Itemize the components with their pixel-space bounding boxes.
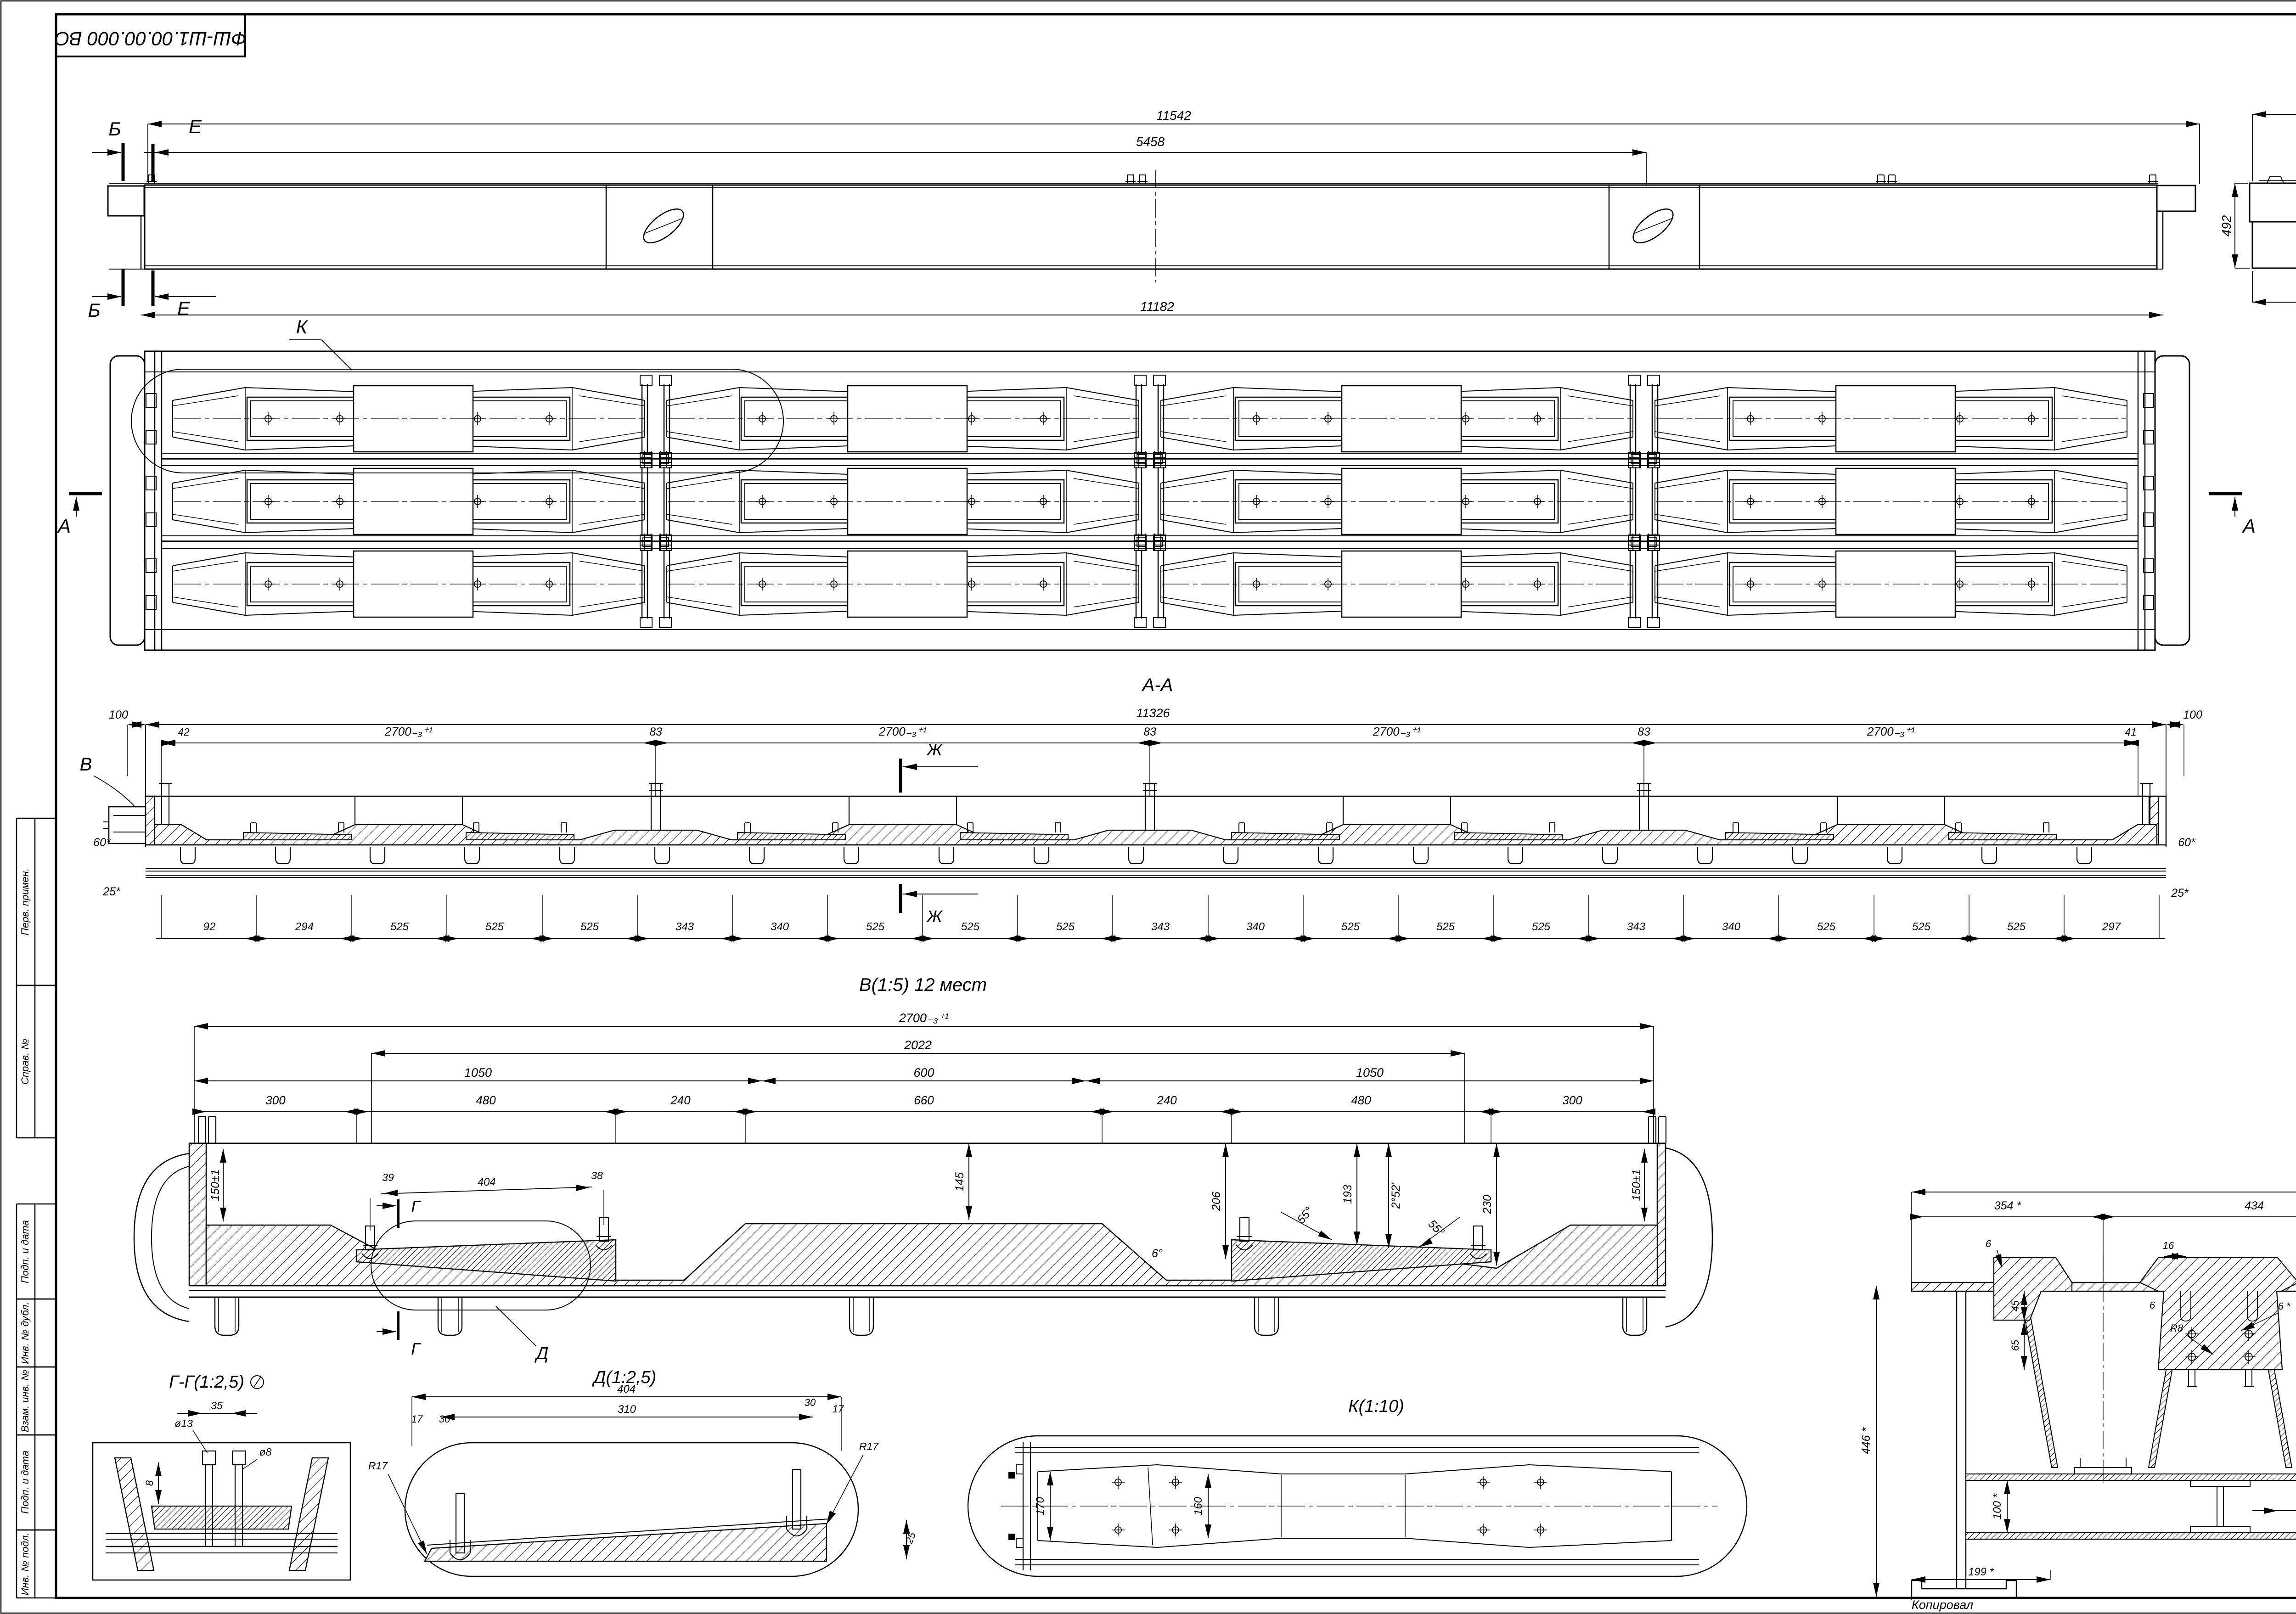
svg-text:230: 230	[1481, 1195, 1494, 1215]
svg-text:Ж: Ж	[926, 740, 943, 759]
svg-text:R8: R8	[2170, 1322, 2183, 1334]
svg-text:А-А: А-А	[1142, 675, 1173, 695]
svg-text:2700₋₃⁺¹: 2700₋₃⁺¹	[384, 725, 433, 738]
svg-text:38: 38	[591, 1170, 603, 1181]
svg-text:ø8: ø8	[259, 1446, 272, 1458]
svg-text:Д: Д	[535, 1344, 549, 1363]
svg-text:39: 39	[382, 1171, 394, 1183]
svg-text:83: 83	[649, 725, 662, 738]
svg-text:25*: 25*	[102, 885, 121, 898]
svg-text:100 *: 100 *	[1991, 1493, 2003, 1519]
svg-text:35: 35	[211, 1400, 223, 1412]
svg-text:300: 300	[265, 1093, 286, 1107]
svg-text:2022: 2022	[904, 1038, 932, 1052]
svg-text:92: 92	[203, 921, 216, 933]
svg-text:Е: Е	[189, 116, 202, 137]
svg-text:30: 30	[439, 1413, 450, 1425]
svg-text:25*: 25*	[2171, 887, 2189, 900]
svg-text:83: 83	[1638, 725, 1650, 738]
svg-text:525: 525	[1341, 921, 1360, 933]
svg-text:206: 206	[1210, 1192, 1223, 1211]
svg-text:Инв. № подл.: Инв. № подл.	[19, 1533, 31, 1596]
svg-text:600: 600	[913, 1066, 934, 1080]
svg-text:Перв. примен.: Перв. примен.	[19, 868, 31, 935]
svg-text:525: 525	[485, 921, 504, 933]
svg-text:6°: 6°	[1152, 1247, 1163, 1260]
svg-text:6: 6	[2150, 1299, 2155, 1311]
svg-text:2700₋₃⁺¹: 2700₋₃⁺¹	[878, 725, 927, 738]
svg-text:Б: Б	[108, 118, 121, 140]
svg-text:300: 300	[1562, 1093, 1582, 1107]
svg-text:525: 525	[1056, 921, 1075, 933]
svg-text:199 *: 199 *	[1968, 1566, 1994, 1578]
svg-text:60*: 60*	[93, 836, 111, 849]
svg-text:297: 297	[2102, 921, 2122, 933]
svg-text:А: А	[56, 515, 71, 537]
svg-text:К(1:10): К(1:10)	[1348, 1397, 1404, 1416]
svg-text:150±1: 150±1	[209, 1169, 222, 1201]
svg-text:193: 193	[1341, 1185, 1354, 1204]
svg-text:404: 404	[617, 1383, 636, 1395]
svg-text:240: 240	[1156, 1093, 1177, 1107]
svg-text:ФШ-Ш1.00.00.000 ВО: ФШ-Ш1.00.00.000 ВО	[55, 28, 247, 50]
svg-text:525: 525	[2007, 921, 2026, 933]
svg-text:Г-Г(1:2,5): Г-Г(1:2,5)	[169, 1372, 244, 1392]
svg-text:150±1: 150±1	[1630, 1169, 1643, 1201]
svg-text:525: 525	[1532, 921, 1551, 933]
svg-text:525: 525	[390, 921, 409, 933]
svg-text:2700₋₃⁺¹: 2700₋₃⁺¹	[1867, 725, 1915, 738]
svg-text:525: 525	[1817, 921, 1836, 933]
svg-text:16: 16	[2163, 1240, 2174, 1251]
svg-text:6 *: 6 *	[2278, 1300, 2291, 1312]
svg-text:8: 8	[144, 1480, 155, 1486]
svg-text:525: 525	[1436, 921, 1455, 933]
svg-text:340: 340	[1722, 921, 1741, 933]
svg-text:17: 17	[833, 1403, 844, 1415]
svg-text:11326: 11326	[1136, 706, 1170, 720]
svg-text:170: 170	[1034, 1496, 1047, 1515]
svg-text:30: 30	[805, 1397, 816, 1408]
svg-text:310: 310	[618, 1403, 636, 1416]
svg-text:343: 343	[675, 921, 694, 933]
svg-text:492: 492	[2219, 215, 2234, 236]
svg-text:Е: Е	[177, 298, 191, 319]
svg-text:340: 340	[771, 921, 789, 933]
svg-text:343: 343	[1627, 921, 1646, 933]
svg-text:525: 525	[961, 921, 980, 933]
svg-text:Подп. и дата: Подп. и дата	[19, 1220, 31, 1283]
svg-text:1050: 1050	[464, 1066, 492, 1080]
svg-text:Подп. и дата: Подп. и дата	[19, 1451, 31, 1514]
svg-text:11182: 11182	[1140, 299, 1174, 314]
svg-text:145: 145	[953, 1172, 966, 1192]
svg-text:45: 45	[2009, 1300, 2021, 1311]
svg-text:ø13: ø13	[174, 1417, 193, 1429]
svg-text:Инв. № дубл.: Инв. № дубл.	[19, 1302, 31, 1364]
svg-text:340: 340	[1246, 921, 1265, 933]
svg-text:В: В	[80, 754, 92, 775]
svg-text:480: 480	[476, 1093, 496, 1107]
svg-text:Взам. инв. №: Взам. инв. №	[19, 1370, 31, 1432]
svg-text:525: 525	[866, 921, 885, 933]
svg-text:160: 160	[1192, 1496, 1204, 1515]
svg-text:660: 660	[914, 1093, 934, 1107]
svg-text:2700₋₃⁺¹: 2700₋₃⁺¹	[1373, 725, 1421, 738]
svg-text:294: 294	[295, 921, 314, 933]
svg-text:446 *: 446 *	[1860, 1427, 1873, 1455]
svg-text:42: 42	[178, 726, 190, 738]
svg-text:6: 6	[1986, 1238, 1992, 1249]
svg-text:1050: 1050	[1356, 1066, 1384, 1080]
svg-text:434: 434	[2245, 1199, 2264, 1212]
svg-text:60*: 60*	[2178, 836, 2196, 849]
svg-text:2700₋₃⁺¹: 2700₋₃⁺¹	[899, 1011, 949, 1025]
svg-text:R17: R17	[859, 1440, 879, 1452]
svg-text:К: К	[296, 316, 309, 337]
svg-text:2°52': 2°52'	[1390, 1182, 1402, 1209]
svg-text:343: 343	[1151, 921, 1170, 933]
svg-text:R17: R17	[368, 1460, 388, 1472]
svg-text:5458: 5458	[1136, 135, 1165, 149]
svg-text:Г: Г	[411, 1197, 421, 1216]
svg-text:525: 525	[1912, 921, 1931, 933]
svg-text:100: 100	[109, 709, 128, 721]
svg-text:65: 65	[2009, 1339, 2021, 1351]
svg-text:В(1:5) 12 мест: В(1:5) 12 мест	[859, 975, 987, 995]
svg-text:Г: Г	[411, 1339, 421, 1358]
svg-text:Б: Б	[88, 299, 100, 321]
svg-text:240: 240	[670, 1093, 691, 1107]
svg-text:Справ. №: Справ. №	[19, 1039, 31, 1085]
svg-text:83: 83	[1143, 725, 1156, 738]
svg-text:480: 480	[1351, 1093, 1371, 1107]
svg-text:354 *: 354 *	[1994, 1199, 2022, 1212]
svg-text:Копировал: Копировал	[1912, 1598, 1973, 1612]
svg-text:11542: 11542	[1156, 108, 1191, 123]
svg-text:404: 404	[477, 1175, 496, 1188]
svg-text:41: 41	[2125, 726, 2137, 738]
svg-text:Ж: Ж	[926, 907, 943, 926]
svg-text:17: 17	[411, 1413, 423, 1425]
svg-text:А: А	[2241, 515, 2256, 537]
svg-text:100: 100	[2183, 709, 2202, 721]
svg-text:525: 525	[580, 921, 599, 933]
